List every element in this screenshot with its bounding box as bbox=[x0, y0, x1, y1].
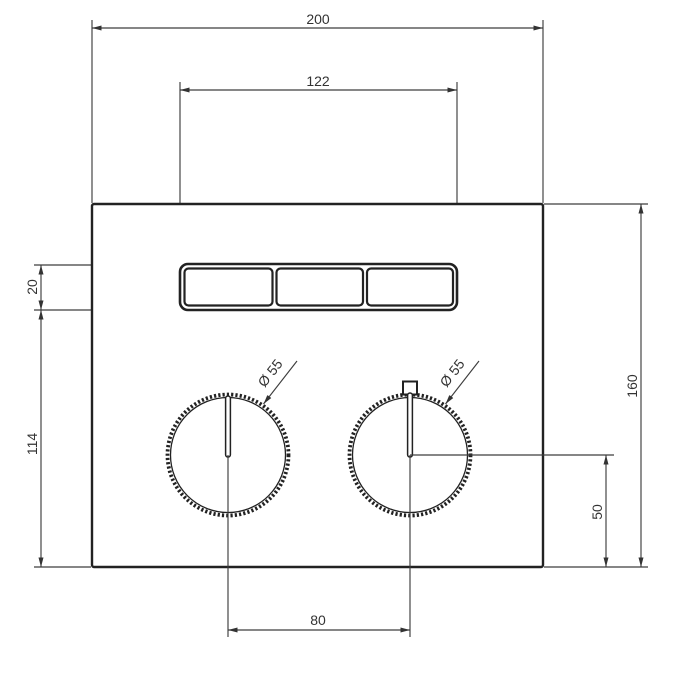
button-2 bbox=[277, 269, 364, 306]
dim-knob-spacing-label: 80 bbox=[310, 612, 326, 628]
dim-overall-height: 160 bbox=[624, 204, 641, 567]
knob-left-indicator bbox=[226, 396, 231, 457]
dim-overall-width: 200 bbox=[92, 11, 543, 28]
dim-button-height-label: 20 bbox=[24, 279, 40, 295]
dim-buttons-width-label: 122 bbox=[306, 73, 330, 89]
knob-right-indicator bbox=[408, 393, 413, 457]
dim-overall-height-label: 160 bbox=[624, 374, 640, 398]
dim-axis-to-bottom: 50 bbox=[589, 455, 606, 567]
button-group bbox=[180, 264, 457, 310]
drawing-sheet: 200 122 20 114 160 50 80 Ø 55 Ø 55 bbox=[0, 0, 700, 700]
dim-lower-height: 114 bbox=[24, 310, 41, 567]
plate-outline bbox=[92, 204, 543, 567]
dim-lower-height-label: 114 bbox=[24, 433, 40, 456]
dim-axis-to-bottom-label: 50 bbox=[589, 504, 605, 520]
button-3 bbox=[367, 269, 453, 306]
dim-overall-width-label: 200 bbox=[306, 11, 330, 27]
technical-drawing: 200 122 20 114 160 50 80 Ø 55 Ø 55 bbox=[0, 0, 700, 700]
button-1 bbox=[185, 269, 273, 306]
dim-buttons-width: 122 bbox=[180, 73, 457, 90]
dim-knob-spacing: 80 bbox=[228, 612, 410, 630]
dim-button-height: 20 bbox=[24, 265, 41, 310]
